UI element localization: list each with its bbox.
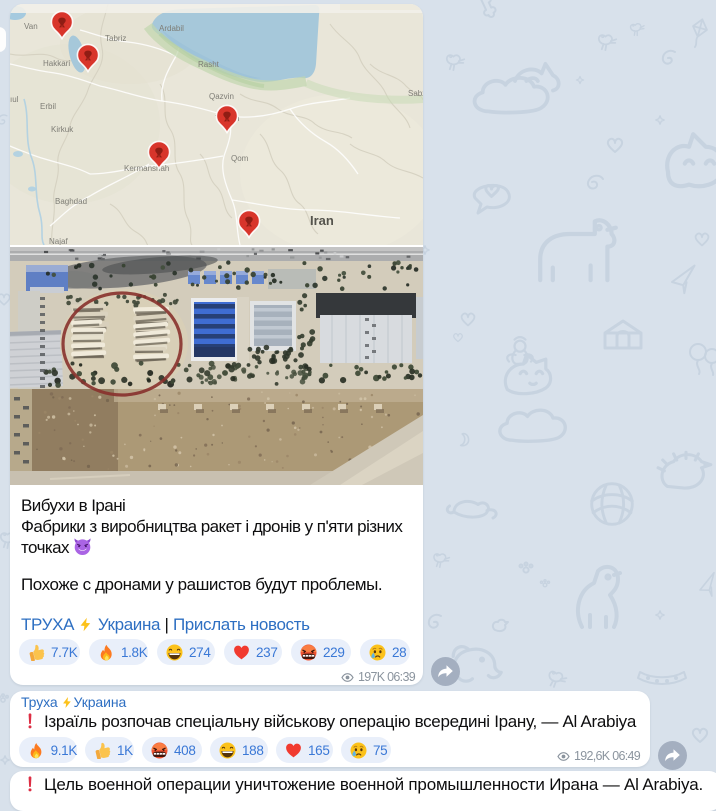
svg-text:Sabze: Sabze [408,89,423,98]
svg-text:Hakkari: Hakkari [43,59,70,68]
svg-text:ıul: ıul [10,95,19,104]
svg-text:Qom: Qom [231,154,249,163]
svg-text:Erbil: Erbil [40,102,56,111]
svg-text:Ardabil: Ardabil [159,24,184,33]
svg-text:Qazvin: Qazvin [209,92,234,101]
svg-text:Baghdad: Baghdad [55,197,87,206]
svg-text:Rasht: Rasht [198,60,220,69]
svg-text:Kermanshah: Kermanshah [124,164,169,173]
svg-text:Kirkuk: Kirkuk [51,125,74,134]
svg-text:Najaf: Najaf [49,237,68,245]
svg-text:Iran: Iran [310,213,334,228]
svg-text:Tabriz: Tabriz [105,34,126,43]
svg-text:Van: Van [24,22,38,31]
